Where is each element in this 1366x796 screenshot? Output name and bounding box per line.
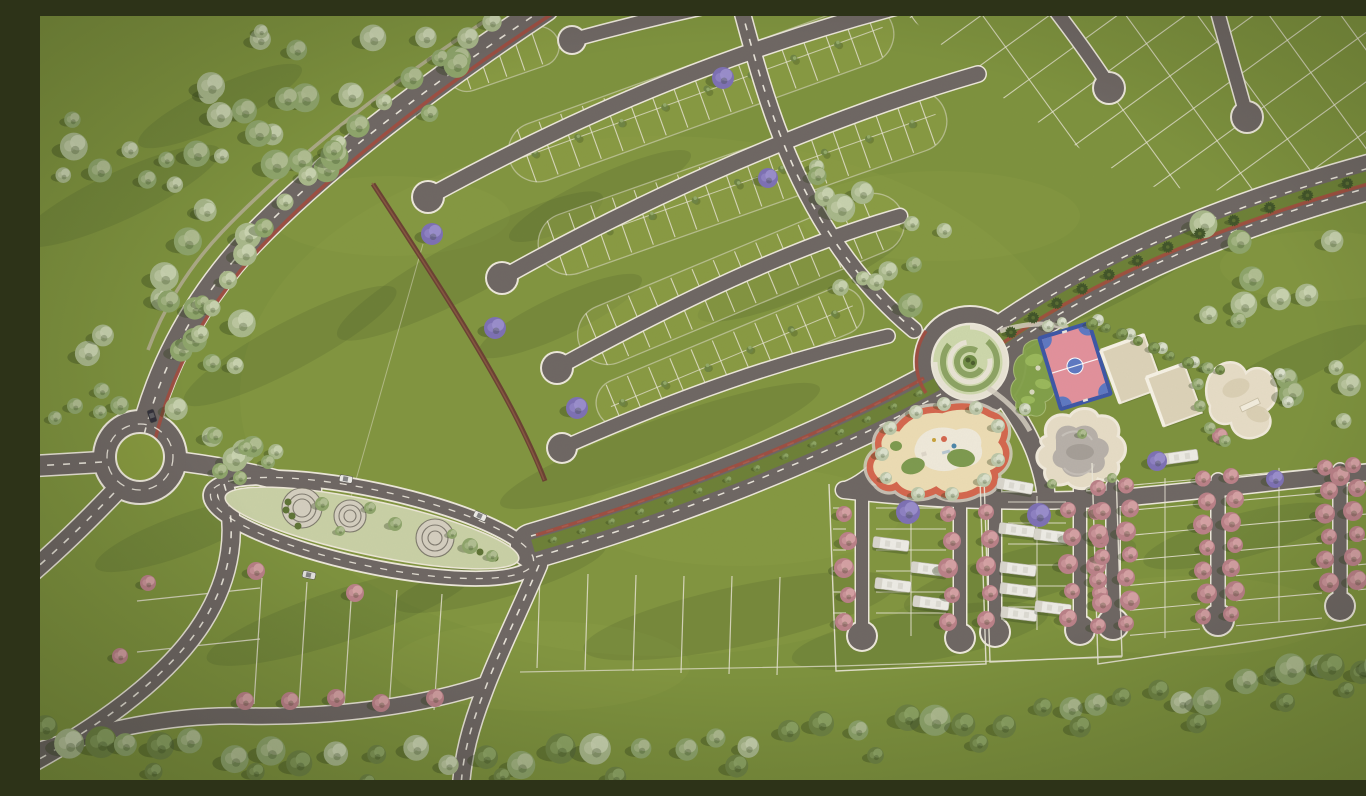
masterplan-aerial-render: Aerial 3D render of a greenfield residen…: [40, 16, 1366, 780]
atmosphere: [40, 16, 1366, 780]
masterplan-scene: [40, 16, 1366, 780]
